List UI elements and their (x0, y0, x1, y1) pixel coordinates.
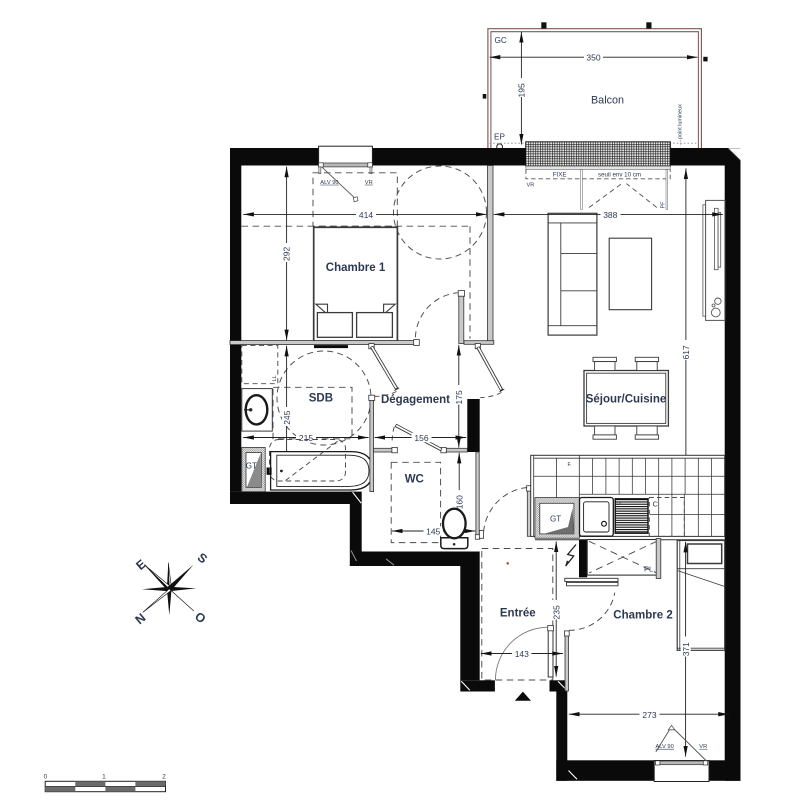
svg-text:VR: VR (527, 183, 535, 189)
svg-text:235: 235 (552, 605, 562, 619)
svg-text:GT: GT (246, 462, 257, 471)
svg-text:Dégagement: Dégagement (381, 394, 450, 406)
svg-text:388: 388 (603, 210, 617, 220)
svg-text:143: 143 (515, 649, 529, 659)
svg-text:GC: GC (495, 36, 507, 45)
svg-text:Séjour/Cuisine: Séjour/Cuisine (586, 394, 667, 406)
svg-text:Chambre 1: Chambre 1 (326, 262, 386, 274)
svg-text:seuil env 10 cm: seuil env 10 cm (598, 172, 641, 179)
svg-text:C: C (653, 500, 659, 509)
svg-text:414: 414 (359, 210, 373, 220)
svg-text:292: 292 (282, 247, 292, 261)
svg-text:2: 2 (162, 773, 166, 780)
svg-text:FIXE: FIXE (553, 172, 567, 179)
svg-text:1: 1 (102, 773, 106, 780)
svg-text:WC: WC (405, 474, 424, 486)
svg-text:LV: LV (617, 501, 622, 506)
svg-text:245: 245 (282, 410, 292, 424)
svg-text:SDB: SDB (309, 393, 333, 405)
svg-text:LL: LL (272, 375, 278, 381)
svg-text:Entrée: Entrée (500, 608, 536, 620)
svg-text:273: 273 (642, 710, 656, 720)
svg-text:617: 617 (681, 345, 691, 359)
svg-text:PL.: PL. (644, 565, 655, 574)
svg-text:Balcon: Balcon (591, 95, 624, 107)
svg-text:point lumineux: point lumineux (678, 104, 684, 139)
svg-text:195: 195 (516, 83, 526, 97)
svg-text:0: 0 (44, 773, 48, 780)
svg-text:145: 145 (426, 527, 440, 537)
svg-text:F.: F. (568, 462, 572, 468)
svg-text:371: 371 (681, 642, 691, 656)
svg-text:215: 215 (299, 433, 313, 443)
svg-text:175: 175 (454, 390, 464, 404)
svg-text:PF: PF (661, 201, 667, 209)
svg-text:156: 156 (414, 433, 428, 443)
svg-text:350: 350 (586, 53, 600, 63)
svg-text:GT: GT (550, 514, 561, 523)
svg-text:EP: EP (494, 133, 505, 142)
svg-text:160: 160 (455, 495, 465, 509)
svg-text:Chambre 2: Chambre 2 (613, 610, 672, 622)
